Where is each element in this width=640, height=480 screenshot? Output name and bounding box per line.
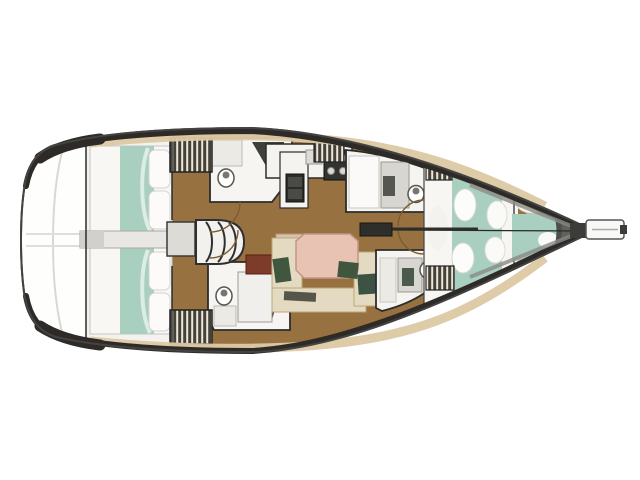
aft-cabin-port-bed — [90, 146, 172, 232]
vanity-cabinet — [212, 140, 242, 166]
shower-seat — [383, 176, 395, 196]
wardrobe-cabinet — [380, 258, 396, 302]
locker-maroon — [246, 255, 272, 274]
pillow — [452, 243, 474, 273]
mast-foot — [360, 223, 392, 236]
hanging-locker — [170, 138, 212, 172]
pillow — [149, 293, 170, 331]
pillow — [149, 150, 170, 188]
pillow — [149, 252, 170, 290]
pillow — [487, 201, 507, 229]
wardrobe-cabinet — [349, 156, 379, 208]
locker-vent — [426, 266, 454, 290]
cushion-green — [337, 261, 359, 279]
side-cabinet — [238, 272, 272, 322]
deck-plan-drawing — [0, 0, 640, 480]
hanging-locker — [170, 310, 212, 344]
stair-landing — [167, 222, 195, 256]
pillow — [485, 237, 505, 263]
stair-treads — [196, 220, 244, 264]
aft-cabin-starboard-bed — [90, 248, 172, 334]
vanity-cabinet — [214, 306, 236, 326]
burner-icon — [328, 168, 335, 175]
bow-roller-tip — [620, 225, 627, 234]
yacht-floor-plan — [0, 0, 640, 480]
oven-drawer — [288, 189, 302, 199]
pillow — [454, 189, 476, 221]
toilet-lid-icon — [221, 290, 228, 297]
shower-seat — [402, 268, 414, 286]
toilet-lid-icon — [223, 172, 230, 179]
engine-box-step — [80, 231, 104, 248]
seat-item — [284, 291, 316, 302]
cushion-green — [272, 257, 291, 283]
toilet-lid-icon — [413, 188, 420, 195]
oven-door — [288, 177, 302, 187]
